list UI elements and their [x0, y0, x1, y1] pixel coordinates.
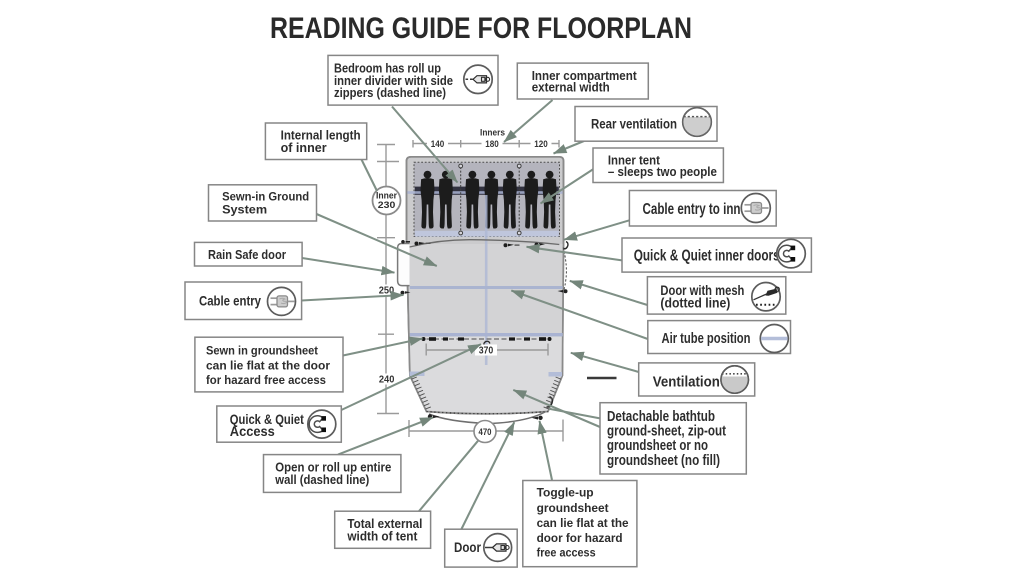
svg-text:– sleeps two people: – sleeps two people — [608, 164, 717, 179]
svg-text:Inners: Inners — [480, 128, 505, 139]
svg-text:Cable entry to inn: Cable entry to inn — [643, 201, 741, 218]
svg-text:can lie flat at the: can lie flat at the — [537, 518, 629, 530]
svg-text:System: System — [222, 203, 267, 217]
svg-text:groundsheet (no fill): groundsheet (no fill) — [607, 453, 720, 469]
svg-text:240: 240 — [379, 374, 395, 386]
svg-text:READING GUIDE FOR FLOORPLAN: READING GUIDE FOR FLOORPLAN — [270, 12, 692, 45]
svg-text:groundsheet or no: groundsheet or no — [607, 438, 708, 454]
svg-text:370: 370 — [479, 345, 494, 357]
svg-text:wall (dashed line): wall (dashed line) — [274, 473, 369, 487]
svg-text:Sewn in groundsheet: Sewn in groundsheet — [206, 343, 318, 357]
svg-text:Rear ventilation: Rear ventilation — [591, 116, 677, 131]
svg-text:Cable entry: Cable entry — [199, 293, 261, 308]
svg-text:zippers (dashed line): zippers (dashed line) — [334, 85, 446, 100]
svg-text:(dotted line): (dotted line) — [660, 296, 730, 311]
svg-text:ground-sheet, zip-out: ground-sheet, zip-out — [607, 424, 726, 440]
svg-text:groundsheet: groundsheet — [537, 503, 609, 515]
svg-text:Sewn-in Ground: Sewn-in Ground — [222, 190, 309, 204]
svg-text:Air tube position: Air tube position — [662, 330, 751, 347]
svg-text:230: 230 — [378, 200, 396, 210]
svg-text:external width: external width — [532, 80, 610, 95]
svg-text:Rain Safe door: Rain Safe door — [208, 248, 286, 262]
svg-text:180: 180 — [485, 139, 499, 150]
svg-text:470: 470 — [479, 427, 492, 438]
svg-text:Quick & Quiet inner doors: Quick & Quiet inner doors — [634, 247, 780, 264]
svg-text:of inner: of inner — [281, 141, 327, 155]
svg-text:for hazard free access: for hazard free access — [206, 373, 326, 387]
svg-text:Door: Door — [454, 540, 482, 555]
svg-text:Toggle-up: Toggle-up — [537, 488, 594, 500]
svg-text:Detachable bathtub: Detachable bathtub — [607, 409, 715, 425]
svg-text:Access: Access — [230, 423, 275, 439]
svg-text:width of tent: width of tent — [346, 529, 418, 543]
svg-text:Ventilation: Ventilation — [653, 373, 720, 390]
svg-text:can lie flat at the door: can lie flat at the door — [206, 358, 330, 372]
svg-text:Inner: Inner — [376, 191, 397, 201]
svg-text:140: 140 — [431, 139, 445, 150]
svg-text:free access: free access — [537, 548, 596, 560]
svg-text:120: 120 — [534, 139, 548, 150]
svg-text:door for hazard: door for hazard — [537, 533, 623, 545]
